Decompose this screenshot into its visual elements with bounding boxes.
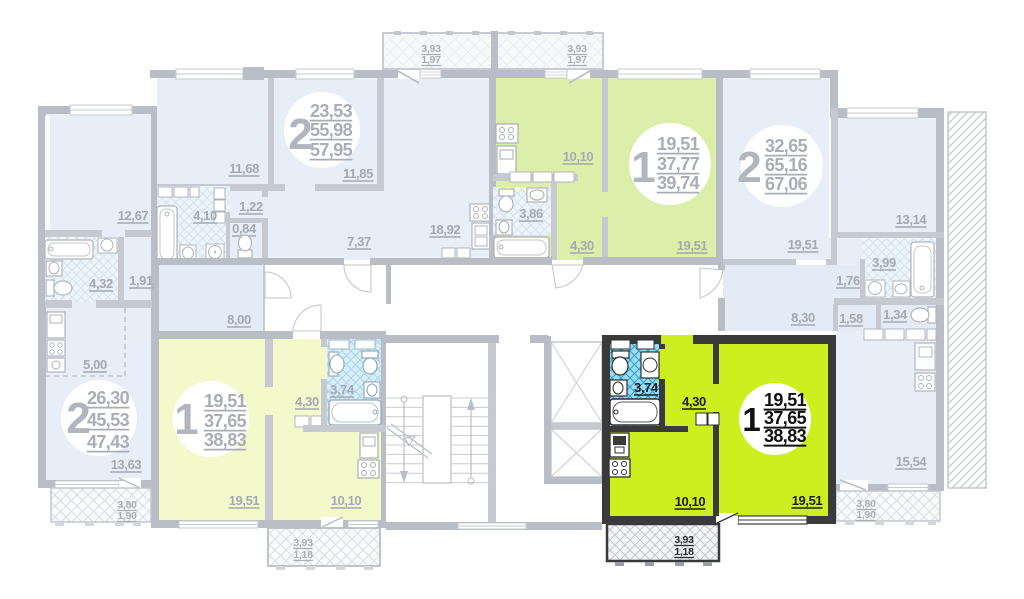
svg-text:3,93: 3,93 — [293, 537, 313, 549]
svg-text:1,34: 1,34 — [883, 307, 908, 322]
svg-text:1,90: 1,90 — [856, 509, 876, 521]
svg-text:19,51: 19,51 — [677, 238, 708, 253]
svg-text:19,51: 19,51 — [792, 493, 823, 508]
svg-text:8,00: 8,00 — [227, 312, 251, 327]
svg-text:10,10: 10,10 — [563, 149, 594, 164]
svg-text:0,84: 0,84 — [232, 221, 257, 236]
svg-text:45,53: 45,53 — [87, 410, 130, 430]
svg-text:2: 2 — [288, 110, 311, 159]
svg-text:1,90: 1,90 — [117, 510, 137, 522]
svg-text:5,00: 5,00 — [83, 357, 107, 372]
svg-text:8,30: 8,30 — [791, 310, 815, 325]
svg-text:7,37: 7,37 — [347, 234, 371, 249]
svg-text:57,95: 57,95 — [310, 140, 353, 160]
svg-text:4,30: 4,30 — [295, 394, 319, 409]
svg-text:37,65: 37,65 — [204, 411, 247, 431]
svg-text:4,10: 4,10 — [193, 208, 217, 223]
svg-text:32,65: 32,65 — [765, 136, 808, 156]
svg-text:1,22: 1,22 — [239, 199, 263, 214]
svg-text:1,18: 1,18 — [674, 546, 694, 558]
svg-text:11,85: 11,85 — [343, 166, 373, 181]
svg-text:1,91: 1,91 — [129, 273, 153, 288]
svg-text:26,30: 26,30 — [87, 388, 130, 408]
svg-text:3,93: 3,93 — [674, 534, 694, 546]
svg-text:4,32: 4,32 — [89, 276, 113, 291]
svg-text:19,51: 19,51 — [764, 390, 807, 410]
svg-text:47,43: 47,43 — [87, 432, 130, 452]
svg-text:19,51: 19,51 — [204, 391, 247, 411]
svg-text:3,74: 3,74 — [634, 380, 659, 395]
svg-text:11,68: 11,68 — [229, 161, 259, 176]
svg-text:37,77: 37,77 — [657, 154, 700, 174]
svg-text:37,65: 37,65 — [764, 408, 807, 428]
svg-text:18,92: 18,92 — [430, 222, 461, 237]
svg-text:65,16: 65,16 — [765, 155, 808, 175]
svg-text:19,51: 19,51 — [229, 493, 260, 508]
svg-text:1,76: 1,76 — [836, 273, 860, 288]
svg-text:15,54: 15,54 — [896, 454, 928, 469]
svg-text:10,10: 10,10 — [675, 494, 706, 509]
svg-text:13,14: 13,14 — [896, 212, 928, 227]
svg-text:23,53: 23,53 — [310, 101, 353, 121]
svg-text:10,10: 10,10 — [331, 493, 362, 508]
svg-text:1,97: 1,97 — [421, 54, 441, 66]
svg-text:1: 1 — [631, 143, 655, 192]
svg-text:39,74: 39,74 — [657, 173, 700, 193]
svg-text:1: 1 — [174, 395, 198, 444]
svg-text:12,67: 12,67 — [118, 208, 149, 223]
svg-text:3,86: 3,86 — [519, 206, 543, 221]
svg-text:13,63: 13,63 — [111, 457, 142, 472]
svg-text:4,30: 4,30 — [570, 238, 594, 253]
svg-text:67,06: 67,06 — [765, 174, 808, 194]
svg-text:1: 1 — [742, 401, 760, 438]
svg-text:3,99: 3,99 — [872, 255, 896, 270]
svg-text:2: 2 — [737, 143, 760, 192]
svg-text:38,83: 38,83 — [204, 430, 247, 450]
svg-text:1,18: 1,18 — [293, 549, 313, 561]
svg-text:38,83: 38,83 — [764, 426, 807, 446]
svg-text:19,51: 19,51 — [788, 237, 819, 252]
svg-text:55,98: 55,98 — [310, 120, 353, 140]
svg-text:4,30: 4,30 — [682, 394, 706, 409]
svg-text:19,51: 19,51 — [657, 134, 700, 154]
svg-text:3,74: 3,74 — [330, 382, 355, 397]
svg-text:1,97: 1,97 — [567, 54, 587, 66]
svg-text:1,58: 1,58 — [839, 311, 863, 326]
